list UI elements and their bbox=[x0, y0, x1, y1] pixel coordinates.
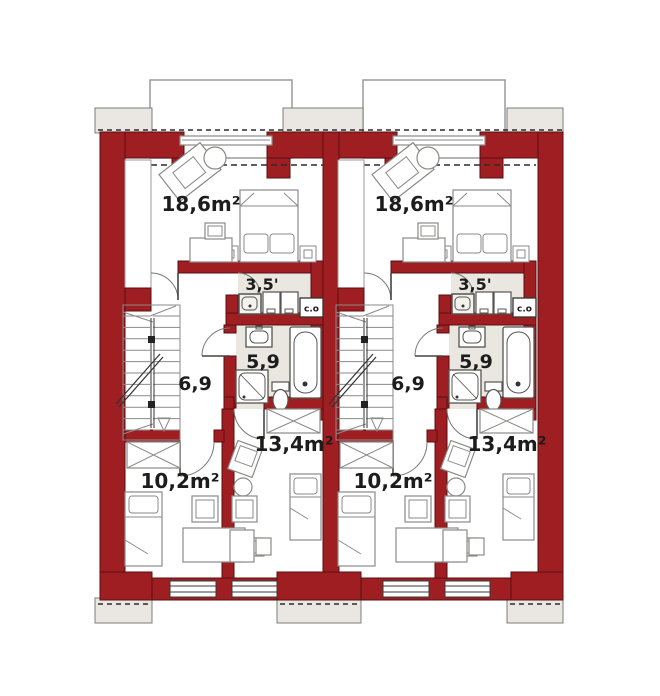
wall bbox=[214, 430, 224, 442]
pillow bbox=[342, 496, 371, 513]
side-chair bbox=[256, 538, 271, 555]
knee-wall-niche bbox=[338, 160, 364, 296]
stair-direction-arrow bbox=[371, 418, 383, 431]
room-label-bedroom-small: 10,2m² bbox=[354, 469, 433, 493]
roof-eave bbox=[507, 598, 563, 623]
side-chair bbox=[469, 538, 484, 555]
pillow bbox=[507, 478, 530, 494]
stair-winder bbox=[123, 312, 153, 322]
door-bedroom-large-swing bbox=[151, 273, 178, 300]
dresser bbox=[190, 238, 232, 262]
stair-newel bbox=[361, 401, 368, 408]
room-label-bathroom: 5,9 bbox=[246, 351, 280, 373]
stair-winder bbox=[150, 306, 176, 316]
pillow bbox=[270, 234, 294, 253]
room-label-bathroom: 5,9 bbox=[459, 351, 493, 373]
roof-eave bbox=[283, 108, 363, 133]
room-label-utility: 3,5' bbox=[458, 275, 491, 294]
room-label-bedroom-small: 10,2m² bbox=[141, 469, 220, 493]
washer bbox=[263, 292, 280, 314]
pillow bbox=[244, 234, 268, 253]
wall bbox=[100, 572, 152, 600]
roof-eave bbox=[95, 108, 152, 133]
window bbox=[170, 581, 216, 597]
wall bbox=[427, 430, 437, 442]
wall bbox=[226, 295, 238, 313]
wall bbox=[178, 261, 323, 273]
shower-drain bbox=[456, 396, 459, 399]
wall bbox=[437, 397, 447, 409]
shower-drain bbox=[243, 396, 246, 399]
floor-plan-canvas: c.o18,6m²3,5'5,96,910,2m²13,4m²c.o18,6m²… bbox=[0, 0, 660, 696]
nightstand bbox=[513, 246, 529, 262]
window bbox=[445, 581, 490, 597]
bathtub-drain bbox=[516, 382, 521, 387]
room-label-utility: 3,5' bbox=[245, 275, 278, 294]
stair-newel bbox=[361, 336, 368, 343]
stair-winder bbox=[336, 312, 366, 322]
wall bbox=[100, 132, 125, 600]
roof-eave bbox=[507, 108, 563, 133]
wall bbox=[277, 572, 361, 600]
room-label-bedroom-medium: 13,4m² bbox=[255, 432, 334, 456]
room-label-bedroom-large: 18,6m² bbox=[375, 192, 454, 216]
boiler-label: c.o bbox=[517, 305, 532, 315]
stair-direction-arrow bbox=[158, 418, 170, 431]
roof-eave bbox=[277, 598, 361, 623]
utility-sink-drain bbox=[249, 305, 252, 308]
dresser bbox=[403, 238, 445, 262]
wall bbox=[439, 295, 451, 313]
wall bbox=[391, 261, 536, 273]
stair-newel bbox=[148, 401, 155, 408]
pillow bbox=[294, 478, 317, 494]
staircase bbox=[116, 305, 180, 440]
unit-left: c.o18,6m²3,5'5,96,910,2m²13,4m² bbox=[116, 136, 333, 578]
nightstand bbox=[300, 246, 316, 262]
floor-plan: c.o18,6m²3,5'5,96,910,2m²13,4m²c.o18,6m²… bbox=[0, 0, 660, 696]
bathtub-drain bbox=[303, 382, 308, 387]
wall bbox=[437, 325, 449, 333]
room-label-bedroom-large: 18,6m² bbox=[162, 192, 241, 216]
desk-chair-round bbox=[204, 147, 226, 169]
roof-eave bbox=[95, 598, 152, 623]
pillow bbox=[457, 234, 481, 253]
wall bbox=[224, 397, 234, 409]
wall bbox=[480, 158, 503, 178]
window bbox=[232, 581, 277, 597]
stair-winder bbox=[363, 306, 389, 316]
washer bbox=[476, 292, 493, 314]
unit-right: c.o18,6m²3,5'5,96,910,2m²13,4m² bbox=[329, 136, 546, 578]
desk bbox=[230, 530, 254, 562]
wall bbox=[267, 158, 290, 178]
washer bbox=[281, 292, 298, 314]
boiler-label: c.o bbox=[304, 305, 319, 315]
room-label-bedroom-medium: 13,4m² bbox=[468, 432, 547, 456]
desk-chair-round bbox=[417, 147, 439, 169]
stool bbox=[447, 478, 465, 496]
wall bbox=[323, 132, 339, 600]
stool bbox=[234, 478, 252, 496]
stair-break-line bbox=[119, 357, 163, 407]
pillow bbox=[483, 234, 507, 253]
window bbox=[383, 581, 429, 597]
stair-newel bbox=[148, 336, 155, 343]
room-label-hallway: 6,9 bbox=[178, 373, 212, 395]
bathtub bbox=[503, 327, 534, 398]
wall bbox=[338, 288, 364, 311]
utility-sink-drain bbox=[462, 305, 465, 308]
wall bbox=[125, 288, 151, 311]
toilet-bowl bbox=[486, 390, 501, 411]
door-bedroom-large-swing bbox=[364, 273, 391, 300]
room-label-hallway: 6,9 bbox=[391, 373, 425, 395]
wall bbox=[538, 132, 563, 600]
toilet-bowl bbox=[273, 390, 288, 411]
washer bbox=[494, 292, 511, 314]
pillow bbox=[129, 496, 158, 513]
wall bbox=[511, 572, 563, 600]
desk bbox=[443, 530, 467, 562]
wall bbox=[224, 325, 236, 333]
bathtub bbox=[290, 327, 321, 398]
knee-wall-niche bbox=[125, 160, 151, 296]
